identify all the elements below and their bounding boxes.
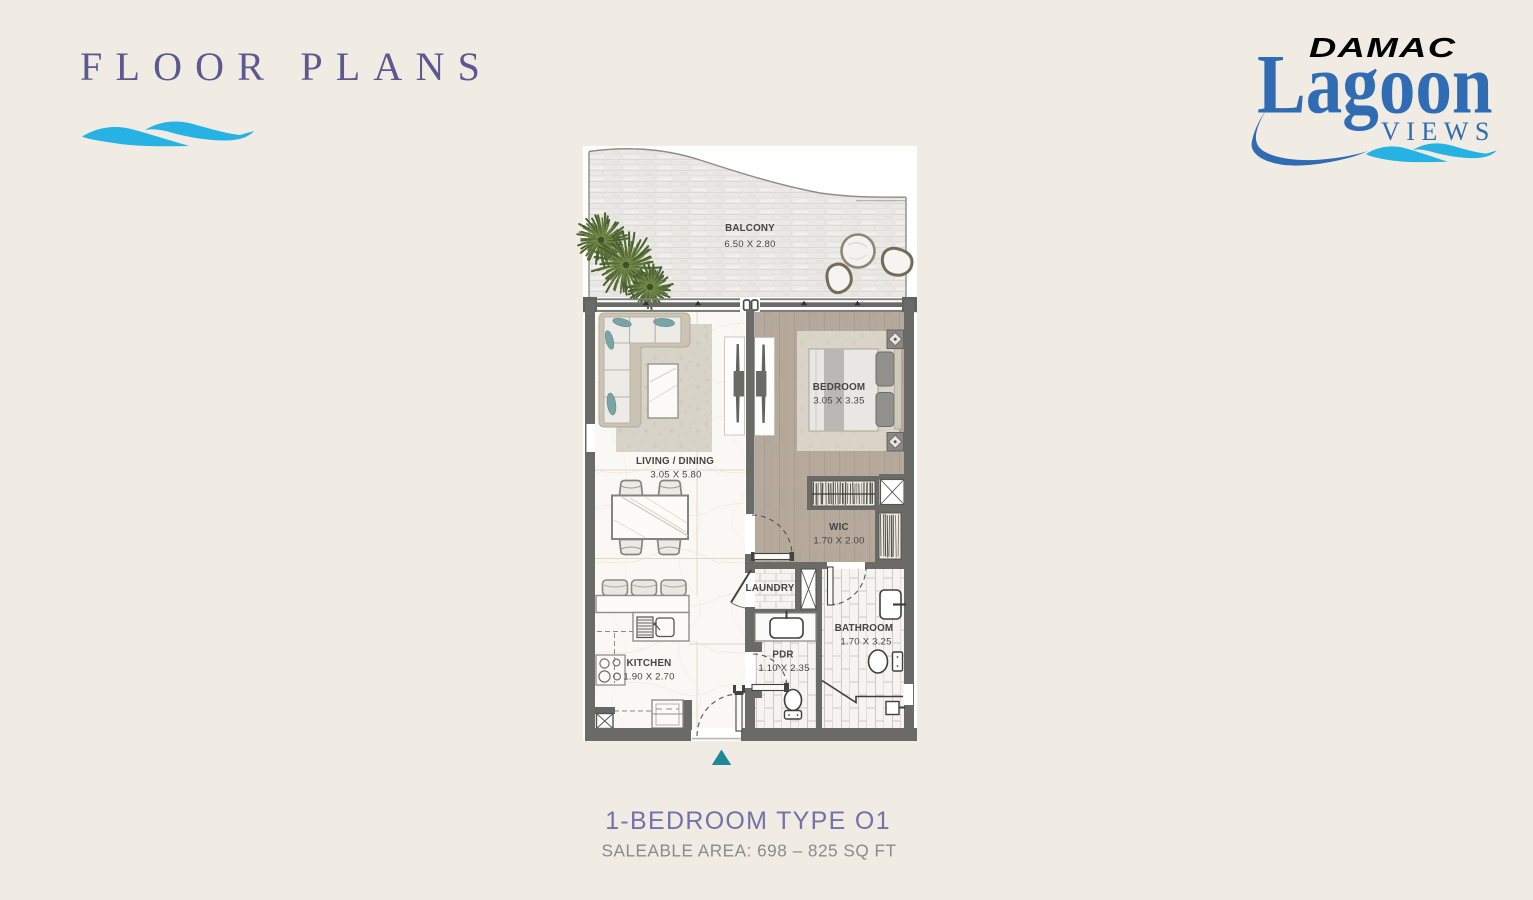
svg-text:PDR: PDR — [772, 650, 793, 661]
svg-text:LIVING / DINING: LIVING / DINING — [636, 456, 714, 467]
svg-text:1.70 X 3.25: 1.70 X 3.25 — [840, 637, 891, 648]
svg-text:1.10 X 2.35: 1.10 X 2.35 — [758, 663, 809, 674]
svg-text:1-BEDROOM TYPE O1: 1-BEDROOM TYPE O1 — [605, 807, 891, 835]
svg-text:6.50 X 2.80: 6.50 X 2.80 — [724, 239, 775, 250]
svg-text:WIC: WIC — [829, 522, 849, 533]
svg-text:3.05 X 5.80: 3.05 X 5.80 — [650, 470, 701, 481]
svg-text:FLOOR PLANS: FLOOR PLANS — [80, 44, 493, 89]
svg-text:LAUNDRY: LAUNDRY — [746, 583, 795, 594]
svg-text:KITCHEN: KITCHEN — [627, 658, 672, 669]
svg-text:3.05 X 3.35: 3.05 X 3.35 — [813, 396, 864, 407]
svg-text:BALCONY: BALCONY — [725, 223, 775, 234]
svg-text:1.70 X 2.00: 1.70 X 2.00 — [813, 536, 864, 547]
svg-text:1.90 X 2.70: 1.90 X 2.70 — [623, 672, 674, 683]
svg-text:BATHROOM: BATHROOM — [835, 623, 894, 634]
svg-text:BEDROOM: BEDROOM — [813, 382, 866, 393]
svg-text:SALEABLE AREA: 698 – 825 SQ FT: SALEABLE AREA: 698 – 825 SQ FT — [602, 841, 897, 861]
svg-text:VIEWS: VIEWS — [1381, 117, 1496, 146]
